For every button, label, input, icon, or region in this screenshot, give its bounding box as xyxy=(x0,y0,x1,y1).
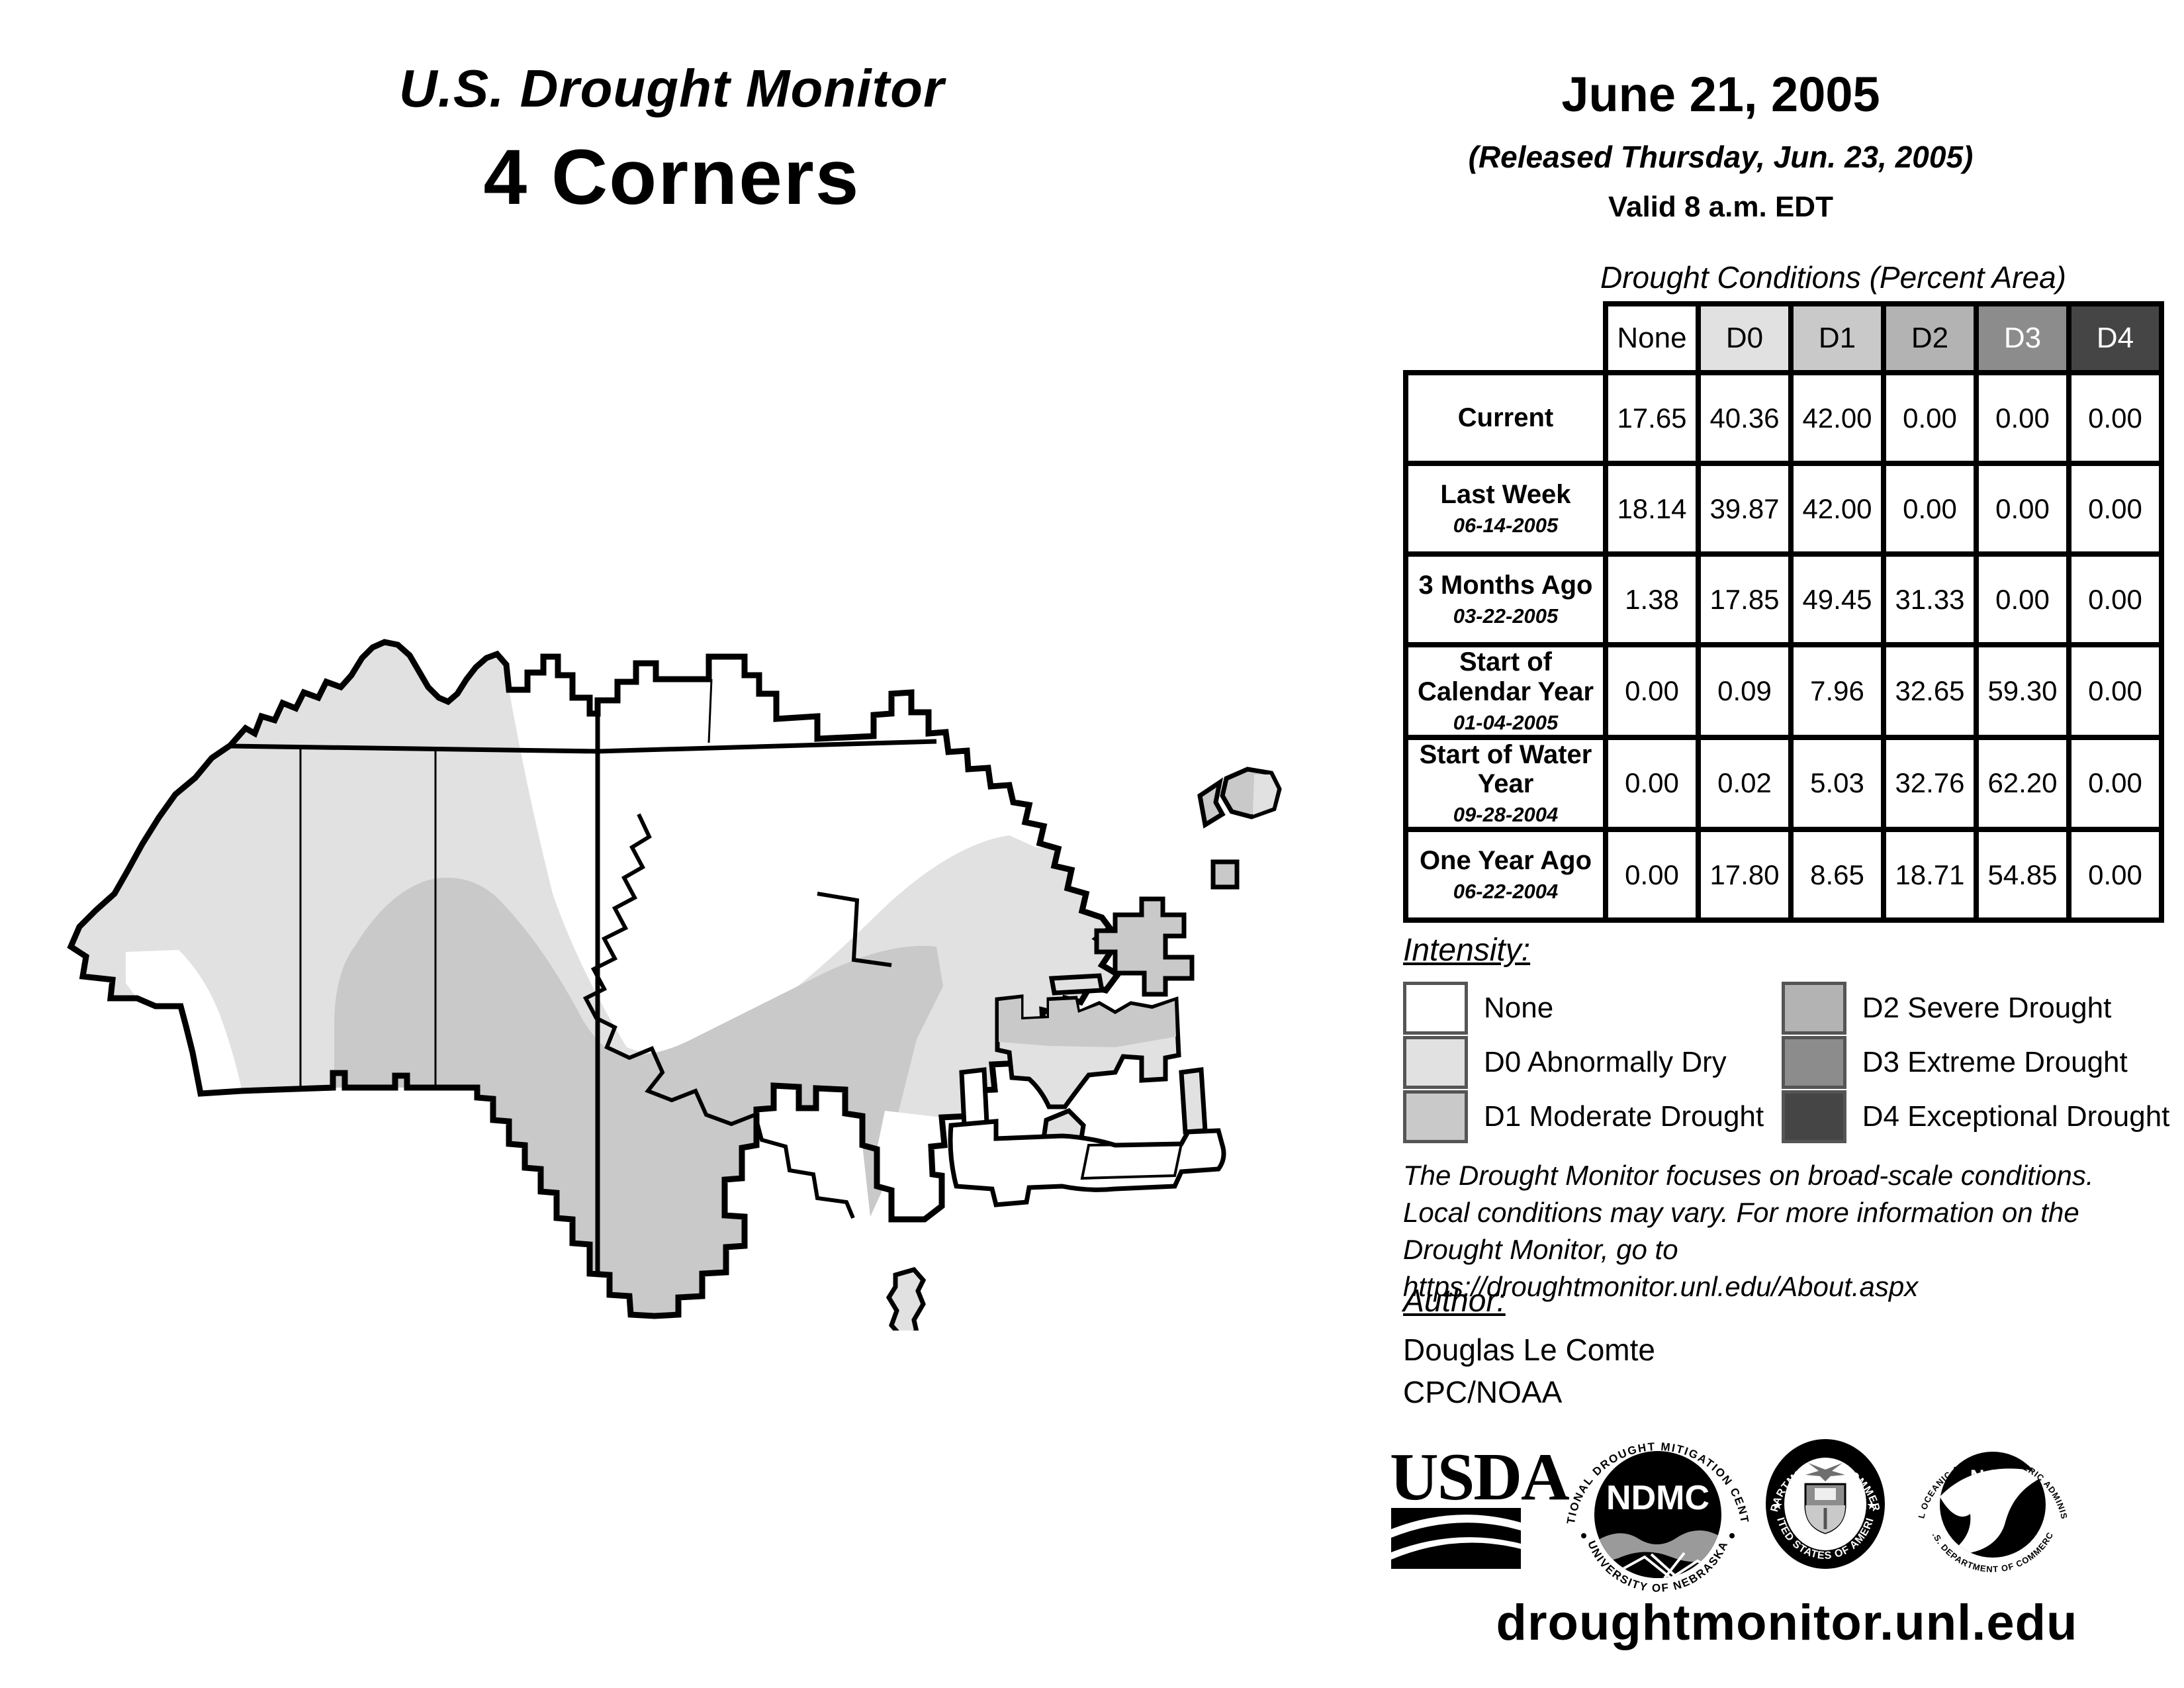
cell-value: 18.14 xyxy=(1606,463,1698,554)
page-title: U.S. Drought Monitor xyxy=(218,58,1125,119)
cell-value: 0.00 xyxy=(1884,463,1976,554)
legend-item-d2: D2 Severe Drought xyxy=(1782,981,2171,1035)
cell-value: 7.96 xyxy=(1791,645,1884,737)
region-title: 4 Corners xyxy=(218,132,1125,222)
row-label: Start of Water Year xyxy=(1408,740,1603,800)
table-row: Last Week 06-14-2005 18.14 39.87 42.00 0… xyxy=(1406,463,2161,554)
cell-value: 32.76 xyxy=(1884,737,1976,830)
row-date: 06-14-2005 xyxy=(1408,514,1603,538)
cell-value: 42.00 xyxy=(1791,463,1884,554)
legend-swatch-d1 xyxy=(1403,1090,1468,1143)
table-corner-blank xyxy=(1406,304,1606,373)
row-date: 06-22-2004 xyxy=(1408,880,1603,904)
legend-label: D4 Exceptional Drought xyxy=(1862,1100,2170,1133)
row-label: Start of Calendar Year xyxy=(1408,647,1603,707)
col-header-d0: D0 xyxy=(1698,304,1791,373)
usda-logo: USDA xyxy=(1390,1440,1569,1569)
table-header-row: None D0 D1 D2 D3 D4 xyxy=(1406,304,2161,373)
cell-value: 31.33 xyxy=(1884,554,1976,645)
legend-item-d1: D1 Moderate Drought xyxy=(1403,1090,1765,1144)
cell-value: 0.00 xyxy=(1884,373,1976,463)
legend-item-d0: D0 Abnormally Dry xyxy=(1403,1035,1765,1090)
release-date: (Released Thursday, Jun. 23, 2005) xyxy=(1423,139,2019,175)
legend-swatch-d3 xyxy=(1782,1036,1846,1089)
cell-value: 54.85 xyxy=(1976,829,2069,920)
row-label: One Year Ago xyxy=(1408,846,1603,876)
legend-item-d4: D4 Exceptional Drought xyxy=(1782,1090,2171,1144)
cell-value: 0.02 xyxy=(1698,737,1791,830)
col-header-d2: D2 xyxy=(1884,304,1976,373)
cell-value: 0.00 xyxy=(1606,737,1698,830)
legend-label: None xyxy=(1484,992,1553,1025)
island-square xyxy=(1213,862,1237,887)
doc-eagle-shield xyxy=(1805,1463,1845,1533)
island-small-bar xyxy=(1052,976,1102,993)
table-row: Start of Water Year 09-28-2004 0.00 0.02… xyxy=(1406,737,2161,830)
island-south-blob xyxy=(889,1270,923,1331)
svg-text:★: ★ xyxy=(1866,1499,1877,1512)
cell-value: 0.00 xyxy=(1606,645,1698,737)
table-title: Drought Conditions (Percent Area) xyxy=(1535,259,2131,295)
cell-value: 0.00 xyxy=(2069,373,2161,463)
table-row: 3 Months Ago 03-22-2005 1.38 17.85 49.45… xyxy=(1406,554,2161,645)
cell-value: 0.00 xyxy=(2069,829,2161,920)
table-row: Current 17.65 40.36 42.00 0.00 0.00 0.00 xyxy=(1406,373,2161,463)
table-row: One Year Ago 06-22-2004 0.00 17.80 8.65 … xyxy=(1406,829,2161,920)
cell-value: 42.00 xyxy=(1791,373,1884,463)
cell-value: 0.00 xyxy=(1976,554,2069,645)
cell-value: 5.03 xyxy=(1791,737,1884,830)
doc-seal: DEPARTMENT OF COMMERCE UNITED STATES OF … xyxy=(1766,1439,1885,1569)
author-name: Douglas Le Comte xyxy=(1403,1332,1655,1368)
valid-time: Valid 8 a.m. EDT xyxy=(1423,191,2019,224)
ndmc-logo: NDMC NATIONAL DROUGHT MITIGATION CENTER … xyxy=(1565,1440,1751,1595)
website-url: droughtmonitor.unl.edu xyxy=(1423,1594,2151,1652)
disclaimer-line: The Drought Monitor focuses on broad-sca… xyxy=(1403,1157,2184,1194)
cell-value: 8.65 xyxy=(1791,829,1884,920)
row-label: Last Week xyxy=(1408,480,1603,510)
legend-item-d3: D3 Extreme Drought xyxy=(1782,1035,2171,1090)
cell-value: 0.00 xyxy=(1606,829,1698,920)
ndmc-logo-text: NDMC xyxy=(1606,1479,1709,1517)
legend-label: D1 Moderate Drought xyxy=(1484,1100,1764,1133)
cell-value: 0.00 xyxy=(2069,554,2161,645)
legend-label: D3 Extreme Drought xyxy=(1862,1046,2128,1079)
col-header-d4: D4 xyxy=(2069,304,2161,373)
cell-value: 1.38 xyxy=(1606,554,1698,645)
legend-label: D2 Severe Drought xyxy=(1862,992,2112,1025)
legend-swatch-d0 xyxy=(1403,1036,1468,1089)
agency-logos: USDA NDMC NATIONAL DROUGHT MITIGATION CE… xyxy=(1383,1430,2151,1609)
cell-value: 40.36 xyxy=(1698,373,1791,463)
legend-title: Intensity: xyxy=(1403,932,1530,968)
col-header-d1: D1 xyxy=(1791,304,1884,373)
cell-value: 32.65 xyxy=(1884,645,1976,737)
author-heading: Author: xyxy=(1403,1283,1506,1319)
intensity-legend: None D0 Abnormally Dry D1 Moderate Droug… xyxy=(1403,981,2171,1144)
usda-logo-text: USDA xyxy=(1390,1440,1569,1515)
cell-value: 62.20 xyxy=(1976,737,2069,830)
island-dart xyxy=(1200,782,1222,825)
legend-label: D0 Abnormally Dry xyxy=(1484,1046,1727,1079)
island-white-tower xyxy=(962,1070,987,1125)
cell-value: 39.87 xyxy=(1698,463,1791,554)
cell-value: 0.00 xyxy=(2069,645,2161,737)
cell-value: 0.00 xyxy=(2069,463,2161,554)
disclaimer-line: Local conditions may vary. For more info… xyxy=(1403,1194,2184,1231)
island-tall-tower xyxy=(1181,1070,1205,1132)
noaa-logo: NOAA NATIONAL OCEANIC AND ATMOSPHERIC AD… xyxy=(1916,1452,2070,1574)
drought-conditions-table: None D0 D1 D2 D3 D4 Current 17.65 40.36 … xyxy=(1403,301,2164,923)
row-label: Current xyxy=(1408,403,1603,433)
table-row: Start of Calendar Year 01-04-2005 0.00 0… xyxy=(1406,645,2161,737)
cell-value: 0.00 xyxy=(2069,737,2161,830)
cell-value: 0.00 xyxy=(1976,463,2069,554)
row-label: 3 Months Ago xyxy=(1408,571,1603,600)
cell-value: 17.65 xyxy=(1606,373,1698,463)
cell-value: 18.71 xyxy=(1884,829,1976,920)
disclaimer-line: Drought Monitor, go to https://droughtmo… xyxy=(1403,1231,2184,1305)
cell-value: 0.00 xyxy=(1976,373,2069,463)
row-date: 01-04-2005 xyxy=(1408,711,1603,735)
legend-item-none: None xyxy=(1403,981,1765,1035)
legend-swatch-d2 xyxy=(1782,982,1846,1035)
legend-swatch-d4 xyxy=(1782,1090,1846,1143)
island-white-cluster xyxy=(950,1121,1224,1205)
cell-value: 17.80 xyxy=(1698,829,1791,920)
cell-value: 0.09 xyxy=(1698,645,1791,737)
col-header-none: None xyxy=(1606,304,1698,373)
cell-value: 59.30 xyxy=(1976,645,2069,737)
cell-value: 49.45 xyxy=(1791,554,1884,645)
author-org: CPC/NOAA xyxy=(1403,1374,1562,1410)
drought-map xyxy=(56,616,1307,1331)
row-date: 09-28-2004 xyxy=(1408,803,1603,827)
disclaimer-text: The Drought Monitor focuses on broad-sca… xyxy=(1403,1157,2184,1305)
col-header-d3: D3 xyxy=(1976,304,2069,373)
legend-swatch-none xyxy=(1403,982,1468,1035)
svg-text:★: ★ xyxy=(1772,1499,1783,1512)
row-date: 03-22-2005 xyxy=(1408,604,1603,628)
cell-value: 17.85 xyxy=(1698,554,1791,645)
map-date: June 21, 2005 xyxy=(1423,66,2019,122)
